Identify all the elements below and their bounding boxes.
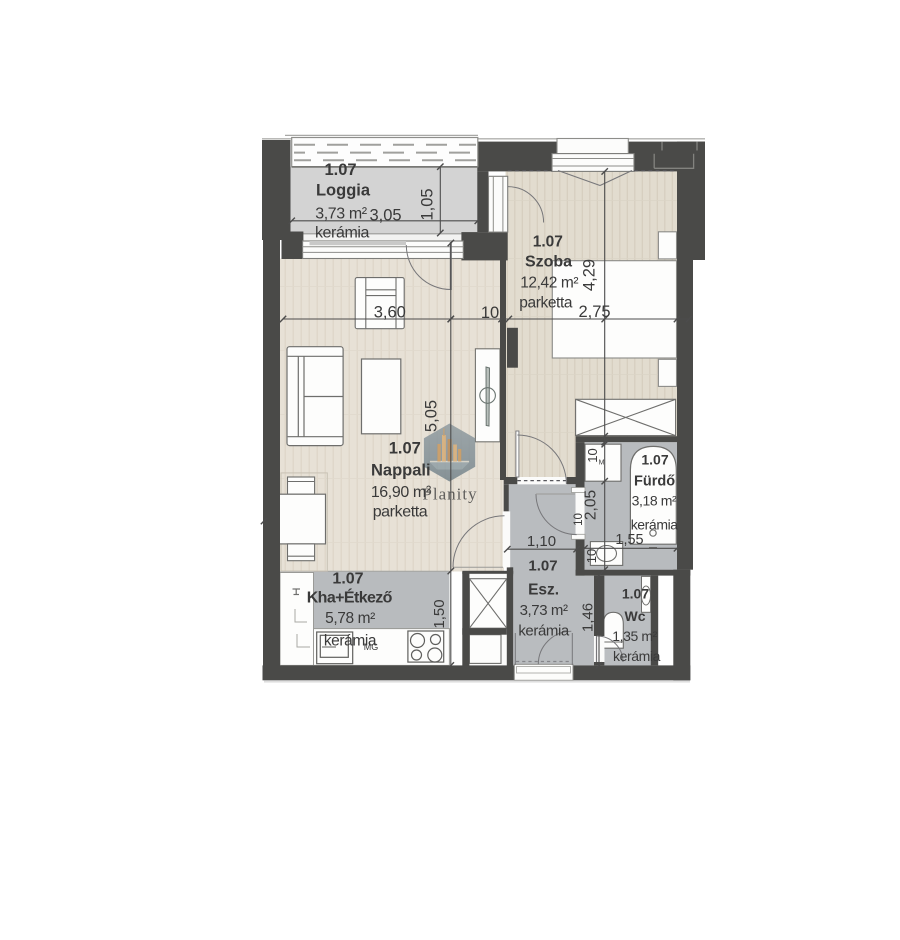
svg-text:10: 10	[584, 549, 599, 563]
svg-text:10: 10	[481, 304, 499, 322]
svg-text:kerámia: kerámia	[518, 623, 570, 640]
svg-text:16,90 m²: 16,90 m²	[371, 484, 432, 501]
svg-text:1.07: 1.07	[528, 558, 557, 575]
svg-text:kerámia: kerámia	[315, 225, 370, 242]
svg-text:1.07: 1.07	[641, 452, 668, 468]
svg-text:3,73 m²: 3,73 m²	[520, 602, 568, 619]
svg-text:Loggia: Loggia	[316, 182, 371, 200]
svg-text:1.07: 1.07	[389, 440, 421, 458]
svg-text:kerámia: kerámia	[613, 648, 661, 664]
svg-text:3,73 m²: 3,73 m²	[315, 206, 368, 223]
svg-text:12,42 m²: 12,42 m²	[520, 275, 578, 292]
svg-text:1.07: 1.07	[622, 586, 649, 602]
svg-text:Esz.: Esz.	[528, 582, 559, 599]
svg-text:parketta: parketta	[373, 503, 428, 520]
svg-text:1,35 m²: 1,35 m²	[612, 628, 657, 644]
svg-text:Fürdő: Fürdő	[634, 474, 675, 490]
svg-text:1,50: 1,50	[431, 599, 448, 628]
svg-text:3,18 m²: 3,18 m²	[632, 493, 677, 509]
svg-text:1,05: 1,05	[419, 188, 437, 220]
svg-text:2,75: 2,75	[578, 303, 610, 321]
svg-text:1.07: 1.07	[332, 571, 363, 588]
svg-text:kerámia: kerámia	[631, 517, 679, 533]
svg-text:M: M	[599, 460, 605, 467]
svg-text:Szoba: Szoba	[525, 254, 572, 271]
svg-text:MG: MG	[364, 642, 379, 652]
svg-text:Kha+Étkező: Kha+Étkező	[307, 588, 393, 607]
svg-text:1.07: 1.07	[324, 161, 356, 179]
svg-text:2,05: 2,05	[583, 490, 600, 520]
svg-text:3,60: 3,60	[374, 304, 406, 322]
svg-text:1,46: 1,46	[580, 603, 597, 632]
svg-text:Wc: Wc	[625, 608, 646, 624]
svg-text:1,10: 1,10	[527, 533, 556, 550]
svg-text:3,05: 3,05	[369, 207, 401, 225]
svg-text:Nappali: Nappali	[371, 462, 431, 480]
svg-text:4,29: 4,29	[581, 259, 599, 291]
svg-text:parketta: parketta	[519, 295, 573, 312]
svg-text:1,55: 1,55	[615, 532, 643, 548]
svg-text:1.07: 1.07	[533, 234, 563, 251]
svg-text:5,05: 5,05	[423, 400, 441, 432]
svg-text:5,78 m²: 5,78 m²	[325, 610, 375, 627]
